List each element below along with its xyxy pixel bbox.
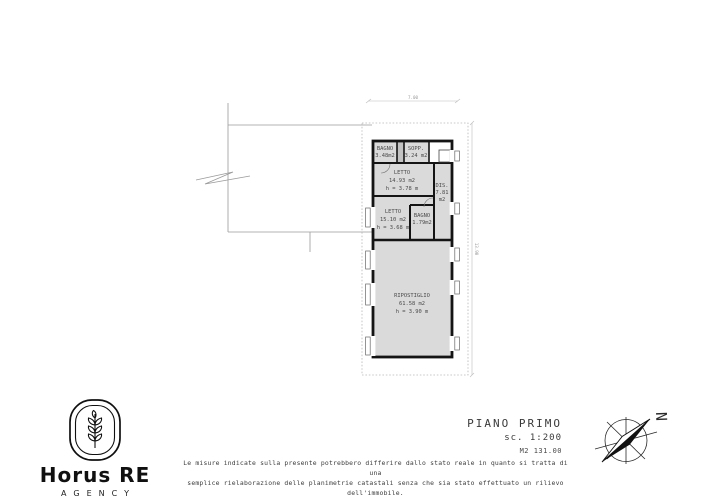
wheat-emblem-icon [67,398,123,462]
room-fills [373,141,452,357]
room-dis-area: 7.81 [436,190,449,196]
adjacent-structure [196,103,372,252]
room-letto1-area: 14.93 m2 [389,178,415,184]
room-ripostiglio-height: h = 3.90 m [396,309,428,315]
room-bagno2-name: BAGNO [414,213,430,219]
break-line-icon [196,172,250,184]
room-sopp-name: SOPP. [408,146,424,152]
title-block: PIANO PRIMO sc. 1:200 M2 131.00 [440,417,562,455]
room-bagno1-area: 3.48m2 [375,153,394,159]
room-dis-unit: m2 [439,197,446,203]
disclaimer-line-2: semplice rielaborazione delle planimetri… [178,478,573,498]
room-bagno2-area: 1.79m2 [412,220,431,226]
floor-title: PIANO PRIMO [440,417,562,430]
disclaimer-text: Le misure indicate sulla presente potreb… [178,458,573,498]
room-bagno1-name: BAGNO [377,146,393,152]
total-area-label: M2 131.00 [440,447,562,455]
room-sopp-area: 3.24 m2 [405,153,428,159]
disclaimer-line-1: Le misure indicate sulla presente potreb… [178,458,573,478]
room-letto1-height: h = 3.78 m [386,186,418,192]
agency-logo: Horus RE AGENCY [20,398,170,498]
north-label: N [652,412,670,422]
logo-brand-text: Horus RE [20,463,170,487]
logo-subtitle-text: AGENCY [20,489,170,498]
scale-label: sc. 1:200 [440,433,562,443]
room-letto2-name: LETTO [385,209,401,215]
room-letto1-name: LETTO [394,170,410,176]
dim-height-label: 13.90 [474,243,479,256]
room-letto2-height: h = 3.68 m [377,225,409,231]
logo-emblem [67,398,123,462]
dim-width-label: 7.00 [408,95,419,100]
compass-rose-icon: N [593,398,678,483]
room-letto2-area: 15.10 m2 [380,217,406,223]
room-dis-name: DIS. [436,183,449,189]
floorplan-page: BAGNO 3.48m2 SOPP. 3.24 m2 LETTO 14.93 m… [0,0,705,498]
room-ripostiglio-name: RIPOSTIGLIO [394,293,430,299]
room-ripostiglio-area: 61.58 m2 [399,301,425,307]
